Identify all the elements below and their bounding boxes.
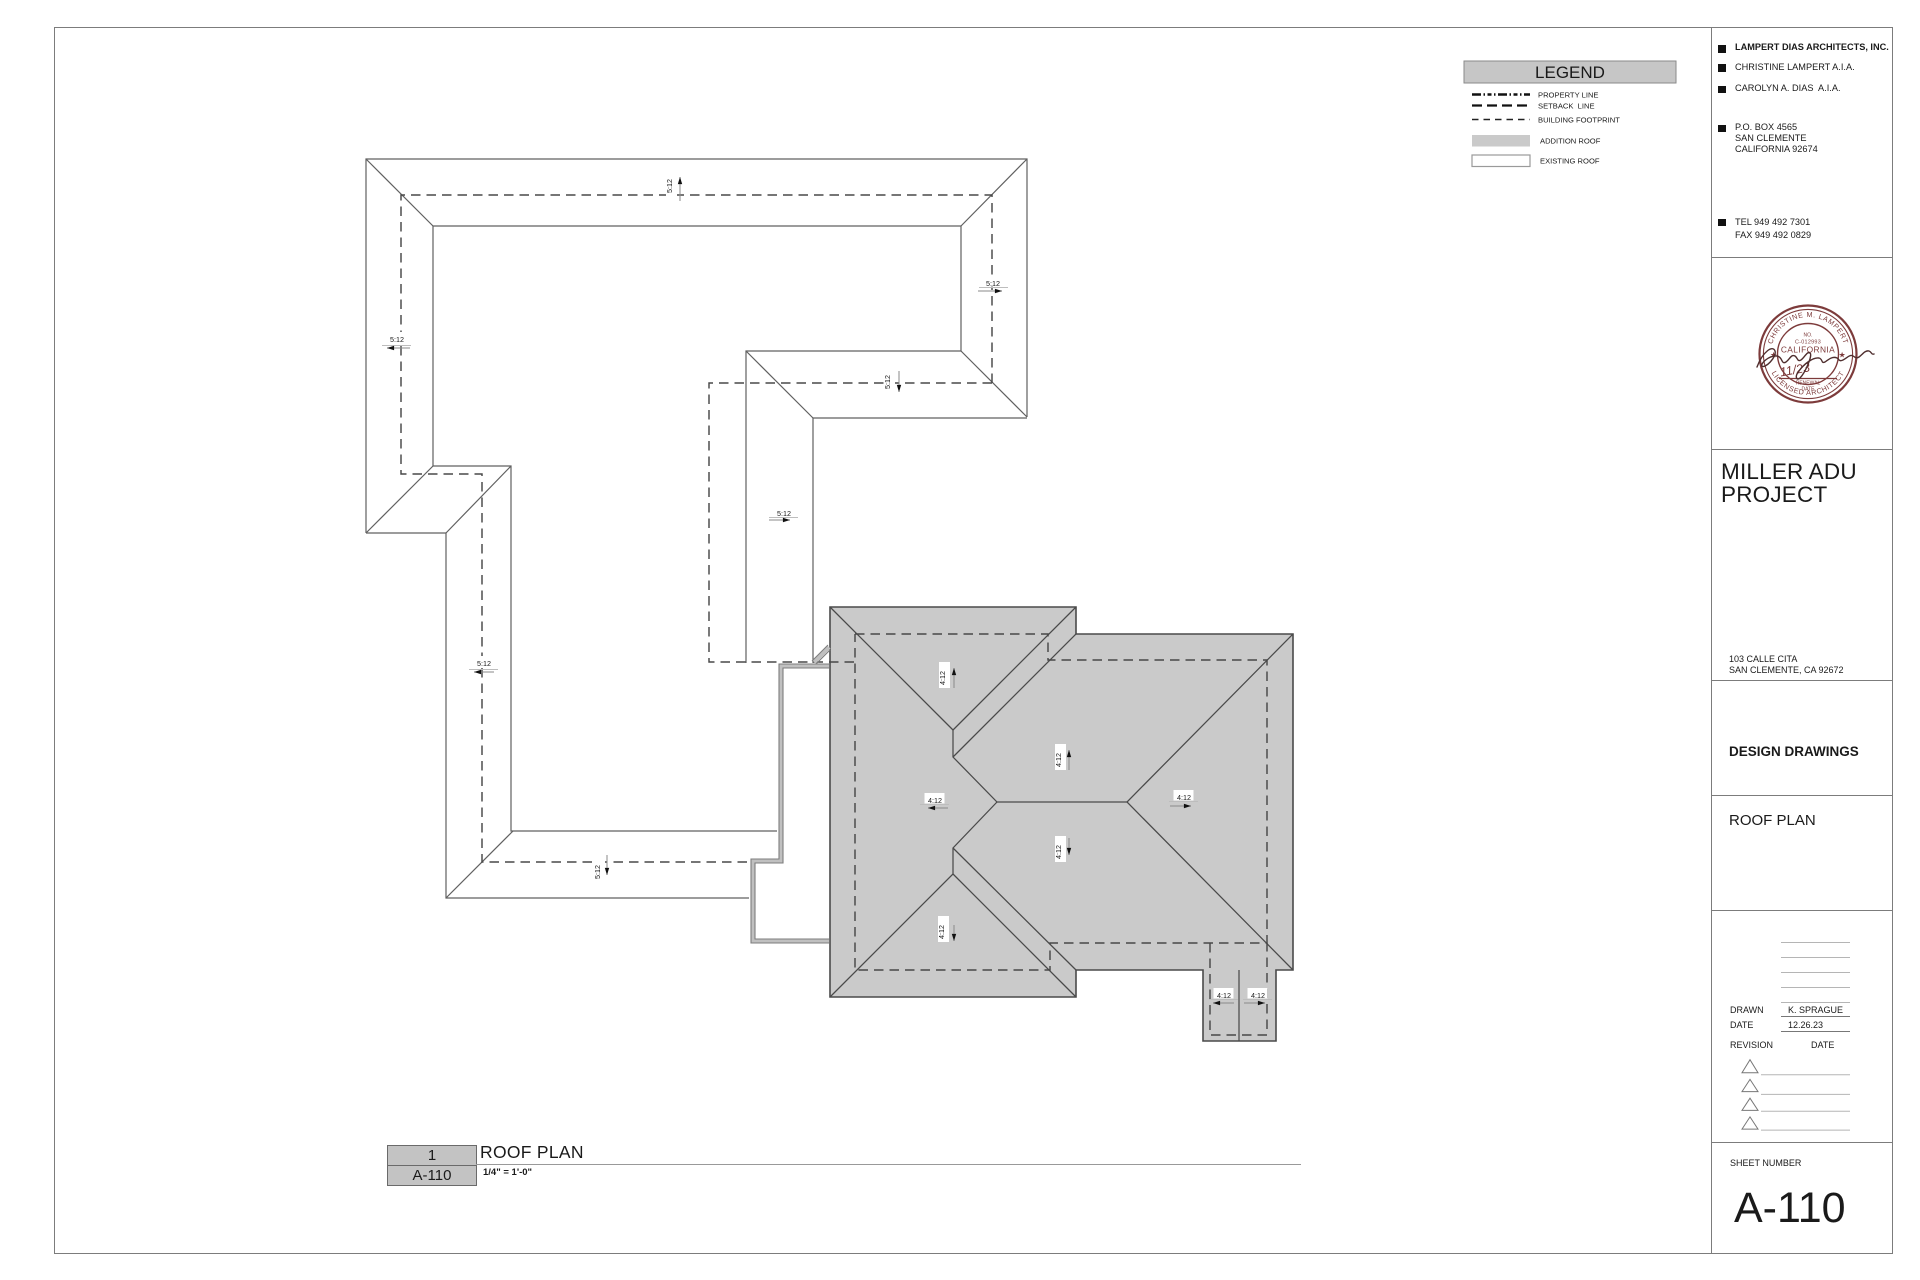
svg-text:NO.: NO. (1804, 333, 1813, 339)
svg-text:4:12: 4:12 (1054, 753, 1063, 767)
svg-text:4:12: 4:12 (1217, 991, 1231, 1000)
svg-text:BUILDING FOOTPRINT: BUILDING FOOTPRINT (1538, 116, 1620, 125)
svg-text:DATE: DATE (1802, 387, 1816, 393)
svg-text:4:12: 4:12 (938, 671, 947, 685)
svg-text:5:12: 5:12 (390, 335, 404, 344)
svg-text:5:12: 5:12 (777, 509, 791, 518)
svg-text:LEGEND: LEGEND (1535, 63, 1605, 82)
svg-text:4:12: 4:12 (1054, 845, 1063, 859)
svg-text:5:12: 5:12 (477, 659, 491, 668)
svg-text:4:12: 4:12 (937, 925, 946, 939)
svg-text:ADDITION ROOF: ADDITION ROOF (1540, 137, 1601, 146)
svg-text:5:12: 5:12 (883, 375, 892, 389)
svg-text:SETBACK LINE: SETBACK LINE (1538, 102, 1595, 111)
svg-text:4:12: 4:12 (928, 796, 942, 805)
svg-text:EXISTING ROOF: EXISTING ROOF (1540, 157, 1600, 166)
svg-text:4:12: 4:12 (1177, 793, 1191, 802)
svg-text:5:12: 5:12 (665, 179, 674, 193)
svg-text:★: ★ (1839, 351, 1846, 360)
svg-text:5:12: 5:12 (593, 865, 602, 879)
svg-text:5:12: 5:12 (986, 279, 1000, 288)
svg-text:PROPERTY LINE: PROPERTY LINE (1538, 91, 1599, 100)
svg-text:4:12: 4:12 (1251, 991, 1265, 1000)
